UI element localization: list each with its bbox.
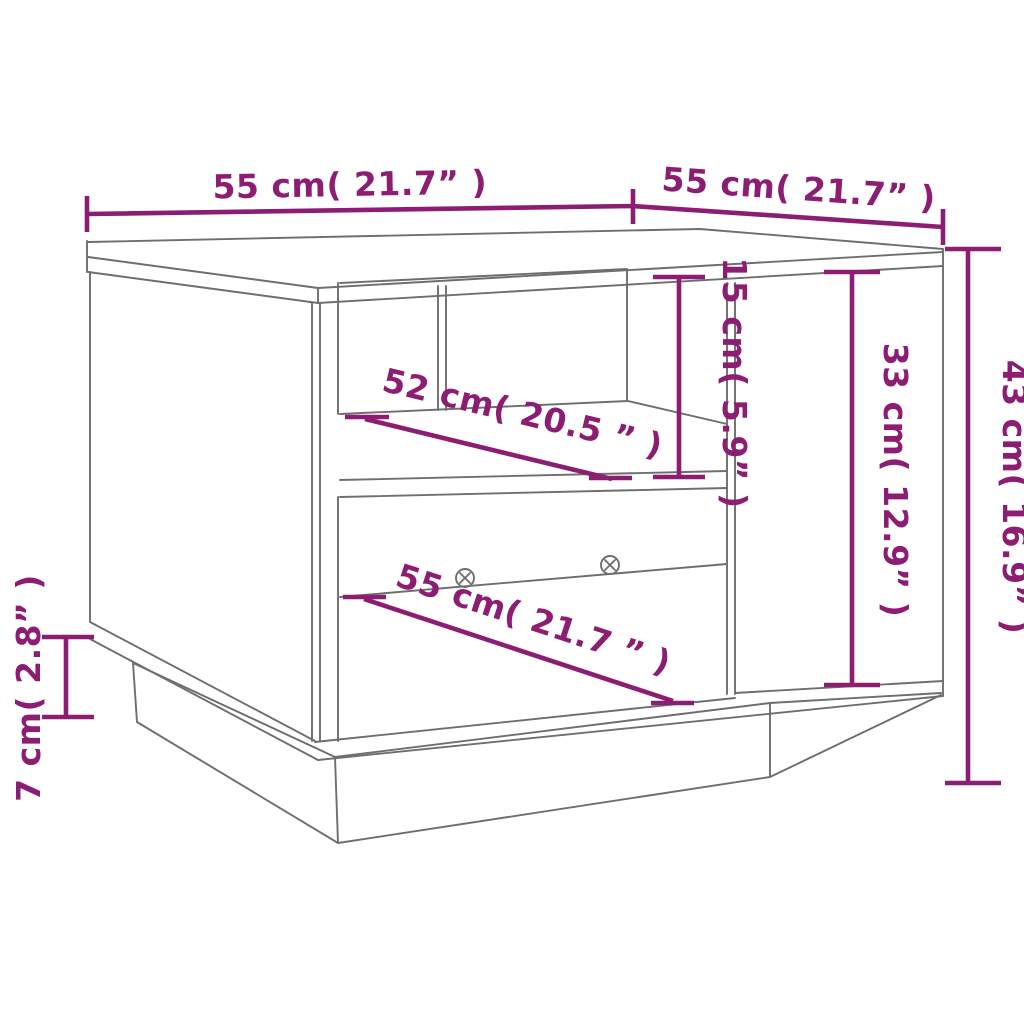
label-shelf-width: 52 cm( 20.5 ” ) (379, 360, 667, 465)
left-side-panel (90, 272, 320, 760)
furniture-outline (87, 229, 943, 843)
label-upper-opening: 15 cm( 5.9” ) (715, 257, 754, 508)
base-plinth (133, 663, 941, 843)
label-door-height: 33 cm( 12.9” ) (876, 343, 915, 618)
dim-base-height-line (42, 637, 94, 717)
label-top-width: 55 cm( 21.7” ) (212, 163, 487, 207)
label-bottom-width: 55 cm( 21.7 ” ) (391, 556, 675, 683)
label-overall-height: 43 cm( 16.9” ) (995, 360, 1024, 635)
coffee-table-drawing: 55 cm( 21.7” ) 55 cm( 21.7” ) 43 cm( 16.… (0, 0, 1024, 1024)
dimension-lines (42, 189, 1001, 783)
dimension-diagram: 55 cm( 21.7” ) 55 cm( 21.7” ) 43 cm( 16.… (0, 0, 1024, 1024)
label-base-height: 7 cm( 2.8” ) (9, 574, 48, 802)
dim-door-height-line (824, 272, 880, 685)
screw-right (601, 556, 619, 574)
dim-height-line (945, 249, 1001, 783)
table-top-slab (87, 229, 943, 303)
bottom-board (315, 696, 943, 760)
